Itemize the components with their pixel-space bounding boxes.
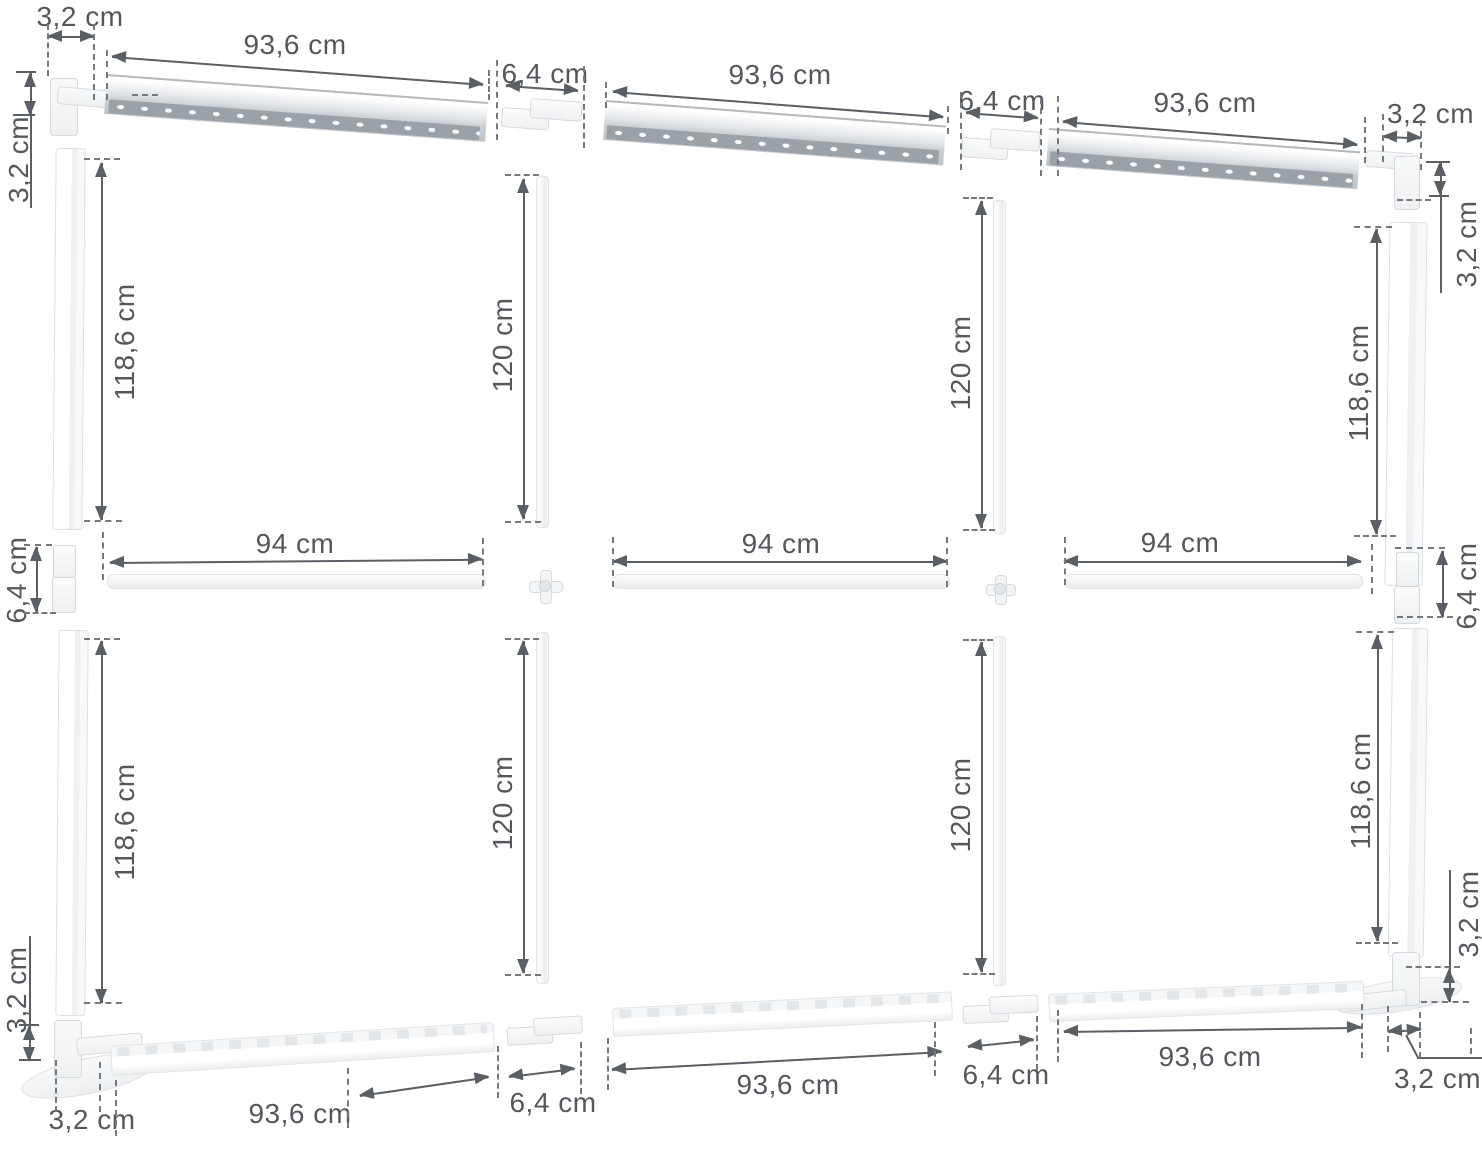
extension-line xyxy=(505,521,541,523)
extension-line xyxy=(482,538,484,586)
dim-label-side-panel-left-bottom: 118,6 cm xyxy=(108,727,142,917)
top-connector-1 xyxy=(501,96,583,132)
extension-line xyxy=(1057,96,1059,176)
dim-label-corner-top-left-h: 3,2 cm xyxy=(20,0,140,34)
dim-arrow-corner-top-left-h xyxy=(48,36,94,38)
extension-line xyxy=(1420,120,1422,170)
extension-line xyxy=(1361,1004,1363,1058)
dim-label-side-connector-right: 6,4 cm xyxy=(1450,517,1482,655)
dim-arrow-side-panel-left-top xyxy=(101,163,103,520)
leader-line xyxy=(1405,1035,1419,1059)
inner-post-lower-right xyxy=(993,636,1006,986)
extension-line xyxy=(102,532,104,580)
inner-post-upper-right xyxy=(993,200,1006,534)
extension-line xyxy=(1406,966,1460,968)
extension-line xyxy=(607,1038,609,1090)
extension-line xyxy=(947,106,949,134)
slot-row xyxy=(1055,983,1357,1005)
extension-line xyxy=(497,1046,499,1098)
dim-label-top-rail-2: 93,6 cm xyxy=(700,58,860,92)
top-connector-2 xyxy=(961,126,1041,162)
dim-arrow-corner-top-right-h xyxy=(1383,136,1421,139)
middle-rail-2 xyxy=(613,574,950,589)
side-panel-left-bottom xyxy=(55,630,88,1016)
extension-line xyxy=(496,60,498,140)
extension-line xyxy=(55,1060,57,1112)
extension-line xyxy=(488,70,490,100)
bottom-rail-1 xyxy=(110,1022,495,1076)
side-connector-left xyxy=(50,545,78,613)
cross-connector-1 xyxy=(529,570,561,602)
side-connector-right xyxy=(1392,552,1422,624)
inner-post-upper-left xyxy=(536,176,549,528)
dim-arrow-corner-bottom-right-h xyxy=(1388,1029,1421,1033)
extension-line xyxy=(24,544,52,546)
extension-line xyxy=(84,1002,122,1004)
slot-row xyxy=(619,994,945,1019)
dim-label-inner-post-upper-right: 120 cm xyxy=(944,296,978,430)
dim-arrow-middle-rail-1 xyxy=(110,559,482,564)
bottom-rail-3 xyxy=(1048,981,1365,1022)
dim-label-middle-rail-2: 94 cm xyxy=(711,527,851,561)
middle-rail-1 xyxy=(107,574,486,589)
dim-arrow-side-connector-right xyxy=(1442,551,1444,617)
extension-line xyxy=(24,612,56,614)
extension-line xyxy=(605,82,607,108)
tick-line xyxy=(13,114,35,116)
extension-line xyxy=(106,50,108,100)
led-strip xyxy=(108,99,481,141)
dim-arrow-bottom-connector-1 xyxy=(509,1068,575,1078)
dim-label-inner-post-upper-left: 120 cm xyxy=(486,278,520,412)
extension-line xyxy=(963,639,993,641)
dim-label-middle-rail-1: 94 cm xyxy=(225,527,365,561)
middle-rail-3 xyxy=(1064,574,1363,589)
extension-line xyxy=(960,92,962,170)
extension-line xyxy=(347,1068,349,1128)
screw-hole xyxy=(994,583,1006,595)
extension-line xyxy=(93,24,95,100)
tick-line xyxy=(1429,195,1449,197)
dim-arrow-corner-bottom-left-v xyxy=(29,1026,31,1061)
bottom-connector-1 xyxy=(506,1015,583,1046)
corner-bracket-top-right-stub xyxy=(1394,156,1420,210)
dim-arrow-middle-rail-3 xyxy=(1064,561,1361,563)
extension-line xyxy=(84,158,120,160)
dim-label-top-rail-1: 93,6 cm xyxy=(215,28,375,62)
dim-arrow-corner-top-left-v xyxy=(30,73,32,115)
extension-line xyxy=(132,94,158,96)
extension-line xyxy=(505,638,539,640)
slot-row xyxy=(117,1024,487,1056)
extension-line xyxy=(1382,114,1384,162)
extension-line xyxy=(963,973,995,975)
leader-line xyxy=(1449,870,1451,969)
dim-label-bottom-connector-2: 6,4 cm xyxy=(956,1058,1056,1092)
extension-line xyxy=(1371,544,1373,594)
side-panel-left-top xyxy=(52,148,85,530)
top-rail-1 xyxy=(104,74,488,142)
extension-line xyxy=(1354,535,1396,537)
inner-post-lower-left xyxy=(536,632,549,984)
top-rail-3 xyxy=(1046,128,1360,189)
extension-line xyxy=(1356,631,1394,633)
dim-arrow-side-panel-right-bottom xyxy=(1377,635,1379,941)
side-panel-right-bottom xyxy=(1388,628,1429,957)
extension-line xyxy=(1040,98,1042,176)
tick-line xyxy=(1426,161,1450,163)
dim-label-top-rail-3: 93,6 cm xyxy=(1125,86,1285,120)
tick-line xyxy=(19,1059,41,1061)
extension-line xyxy=(1397,616,1453,618)
side-panel-right-top xyxy=(1384,222,1427,586)
led-strip xyxy=(1049,151,1353,187)
dim-label-side-panel-left-top: 118,6 cm xyxy=(108,247,142,437)
dim-arrow-side-panel-left-bottom xyxy=(101,641,103,1003)
dim-arrow-corner-bottom-right-v xyxy=(1449,969,1451,1002)
dim-label-bottom-connector-1: 6,4 cm xyxy=(503,1086,603,1120)
extension-line xyxy=(84,638,120,640)
extension-line xyxy=(1354,226,1392,228)
extension-line xyxy=(84,520,122,522)
extension-line xyxy=(934,1022,936,1076)
dim-arrow-inner-post-lower-left xyxy=(523,641,525,973)
dim-arrow-middle-rail-2 xyxy=(613,561,947,563)
dim-arrow-bottom-rail-3 xyxy=(1064,1027,1361,1033)
led-strip xyxy=(606,125,939,164)
leader-line xyxy=(29,936,31,1026)
extension-line xyxy=(1364,117,1366,163)
dim-arrow-inner-post-upper-right xyxy=(981,201,983,528)
dim-arrow-bottom-connector-2 xyxy=(968,1039,1034,1048)
dim-label-side-panel-right-top: 118,6 cm xyxy=(1342,288,1376,478)
dim-arrow-corner-top-right-v xyxy=(1440,162,1442,195)
dim-label-middle-rail-3: 94 cm xyxy=(1110,526,1250,560)
bottom-connector-2 xyxy=(962,995,1039,1024)
dim-label-side-panel-right-bottom: 118,6 cm xyxy=(1344,696,1378,886)
extension-line xyxy=(1064,537,1066,585)
extension-line xyxy=(47,24,49,76)
extension-line xyxy=(963,197,993,199)
extension-line xyxy=(1036,1016,1038,1070)
tick-line xyxy=(16,71,36,73)
dim-label-corner-top-right-v: 3,2 cm xyxy=(1450,190,1482,298)
dim-label-bottom-rail-1: 93,6 cm xyxy=(235,1097,365,1131)
screw-hole xyxy=(539,580,551,592)
leader-line xyxy=(1440,195,1442,293)
extension-line xyxy=(946,537,948,587)
cross-connector-2 xyxy=(986,575,1014,603)
dim-label-corner-bottom-left-h: 3,2 cm xyxy=(32,1103,152,1137)
extension-line xyxy=(580,1042,582,1094)
top-rail-2 xyxy=(603,100,946,165)
extension-line xyxy=(1470,1028,1472,1054)
extension-line xyxy=(1387,1006,1389,1052)
exploded-frame-dimension-diagram: 3,2 cm 93,6 cm 6,4 cm 93,6 cm 6,4 cm 93,… xyxy=(0,0,1482,1149)
dim-label-bottom-rail-2: 93,6 cm xyxy=(708,1068,868,1102)
extension-line xyxy=(115,1080,117,1136)
extension-line xyxy=(583,66,585,148)
dim-arrow-side-connector-left xyxy=(36,547,38,612)
dim-arrow-inner-post-lower-right xyxy=(981,642,983,972)
extension-line xyxy=(505,174,539,176)
dim-label-inner-post-lower-left: 120 cm xyxy=(486,736,520,870)
leader-line xyxy=(30,115,32,208)
extension-line xyxy=(505,974,541,976)
extension-line xyxy=(963,529,995,531)
dim-label-side-connector-left: 6,4 cm xyxy=(0,510,34,650)
bottom-rail-2 xyxy=(612,991,953,1037)
extension-line xyxy=(1057,1010,1059,1062)
dim-arrow-bottom-rail-1 xyxy=(360,1076,489,1097)
extension-line xyxy=(1395,547,1445,549)
dim-label-bottom-rail-3: 93,6 cm xyxy=(1130,1040,1290,1074)
extension-line xyxy=(612,537,614,587)
dim-label-corner-bottom-right-h: 3,2 cm xyxy=(1390,1062,1482,1096)
dim-label-inner-post-lower-right: 120 cm xyxy=(944,738,978,872)
extension-line xyxy=(1397,199,1431,201)
extension-line xyxy=(1419,1012,1421,1058)
extension-line xyxy=(99,1062,101,1112)
extension-line xyxy=(1356,942,1398,944)
leader-line xyxy=(1417,1057,1482,1059)
dim-label-corner-bottom-right-v: 3,2 cm xyxy=(1452,858,1482,970)
dim-arrow-inner-post-upper-left xyxy=(523,179,525,519)
tick-line xyxy=(19,1024,39,1026)
dim-arrow-side-panel-right-top xyxy=(1376,229,1378,534)
extension-line xyxy=(1421,1001,1469,1003)
dim-label-corner-top-right-h: 3,2 cm xyxy=(1378,97,1482,131)
